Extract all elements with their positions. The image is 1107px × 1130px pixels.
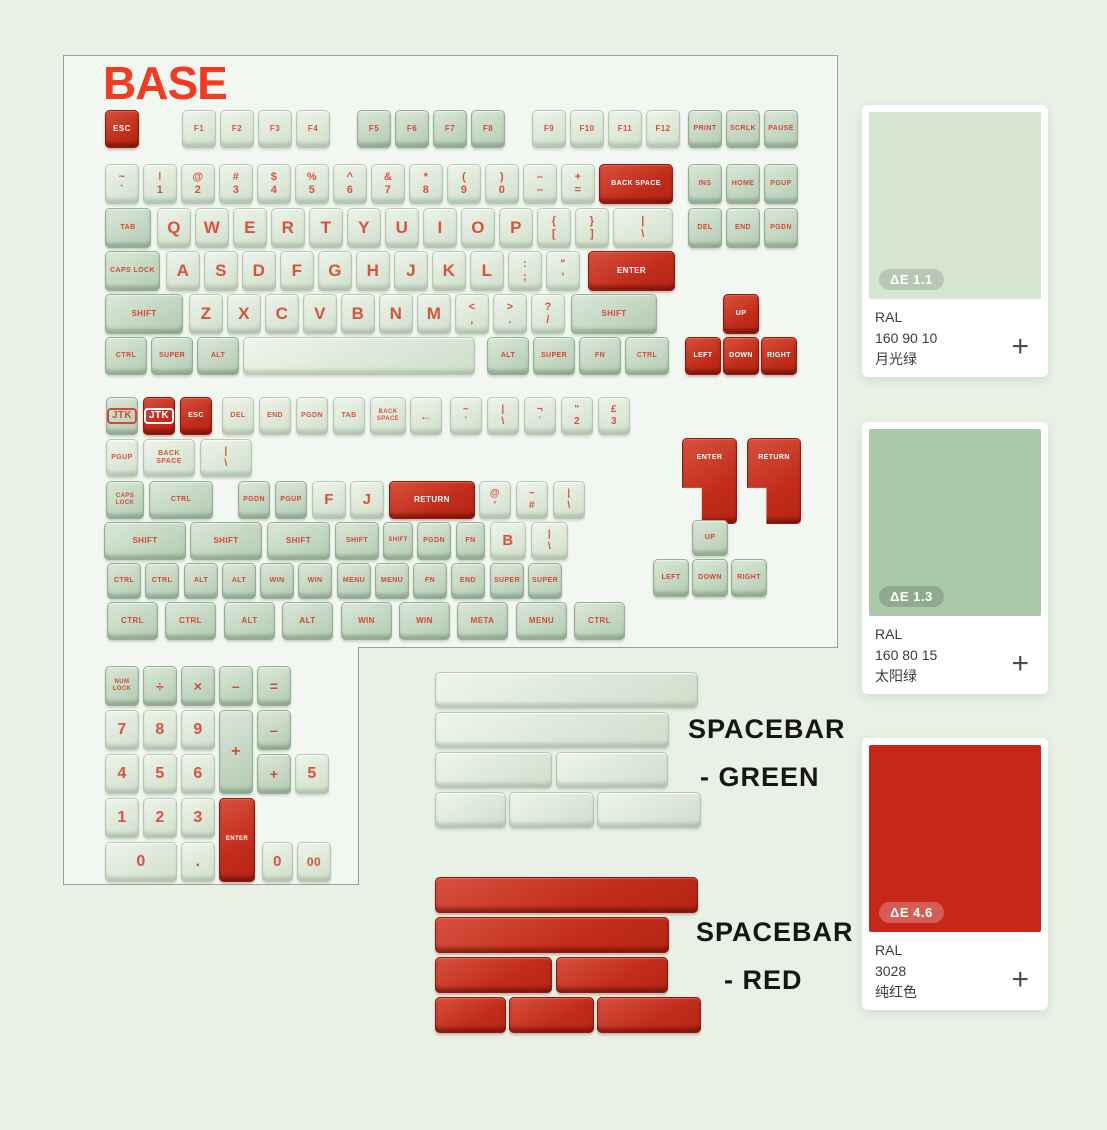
main-keycap: PGUP <box>764 164 798 204</box>
extras-keycap: ← <box>410 397 442 435</box>
extras-keycap: PGUP <box>275 481 307 519</box>
main-keycap: F6 <box>395 110 429 148</box>
main-keycap: PGDN <box>764 208 798 248</box>
color-card-moon-green: ΔE 1.1 RAL 160 90 10 月光绿 + <box>862 105 1048 377</box>
extras-keycap: RETURN <box>747 438 801 524</box>
main-keycap: PAUSE <box>764 110 798 148</box>
main-keycap: F9 <box>532 110 566 148</box>
main-keycap: & 7 <box>371 164 405 204</box>
main-keycap: K <box>432 251 466 291</box>
extras-keycap: F <box>312 481 346 519</box>
numpad-keycap: 9 <box>181 710 215 750</box>
extras-keycap: ALT <box>184 563 218 599</box>
main-keycap: DEL <box>688 208 722 248</box>
main-keycap: ^ 6 <box>333 164 367 204</box>
main-keycap: { [ <box>537 208 571 248</box>
numpad-keycap: 6 <box>181 754 215 794</box>
spacebar-green-keycap <box>435 752 552 788</box>
jtk-logo: JTK <box>107 408 137 424</box>
spacebar-red-keycap <box>435 957 552 993</box>
numpad-keycap: 0 <box>262 842 293 882</box>
spacebar-red-keycap <box>597 997 701 1033</box>
main-keycap: SHIFT <box>105 294 183 334</box>
numpad-keycap: 5 <box>295 754 329 794</box>
main-keycap: UP <box>723 294 759 334</box>
main-keycap: TAB <box>105 208 151 248</box>
extras-keycap: | \ <box>531 522 568 560</box>
numpad-keycap: – <box>219 666 253 706</box>
main-keycap: D <box>242 251 276 291</box>
spacebar-green-keycap <box>556 752 668 788</box>
add-color-button[interactable]: + <box>1011 332 1029 362</box>
color-swatch: ΔE 1.3 <box>869 429 1041 616</box>
extras-keycap: ALT <box>222 563 256 599</box>
numpad-keycap: 5 <box>143 754 177 794</box>
main-keycap: S <box>204 251 238 291</box>
delta-e-badge: ΔE 1.3 <box>879 586 944 607</box>
extras-keycap: CTRL <box>149 481 213 519</box>
main-keycap: ESC <box>105 110 139 148</box>
main-keycap: R <box>271 208 305 248</box>
main-keycap: PRINT <box>688 110 722 148</box>
numpad-keycap: + <box>257 754 291 794</box>
numpad-keycap: NUM LOCK <box>105 666 139 706</box>
spacebar-red-keycap <box>435 917 669 953</box>
extras-keycap: SHIFT <box>190 522 262 560</box>
main-keycap: F <box>280 251 314 291</box>
spacebar-red-sublabel: - RED <box>724 965 803 996</box>
card-footer: RAL 160 90 10 月光绿 + <box>869 299 1041 370</box>
numpad-keycap: 0 <box>105 842 177 882</box>
numpad-keycap: ENTER <box>219 798 255 882</box>
extras-keycap: CTRL <box>107 563 141 599</box>
main-keycap: % 5 <box>295 164 329 204</box>
spacebar-green-keycap <box>435 672 698 708</box>
extras-keycap: ~ # <box>516 481 548 519</box>
extras-keycap: PGDN <box>417 522 451 560</box>
color-card-sun-green: ΔE 1.3 RAL 160 80 15 太阳绿 + <box>862 422 1048 694</box>
main-keycap: END <box>726 208 760 248</box>
extras-keycap: END <box>259 397 291 435</box>
main-keycap: SHIFT <box>571 294 657 334</box>
extras-keycap: SHIFT <box>335 522 379 560</box>
main-keycap: < , <box>455 294 489 334</box>
main-keycap: RIGHT <box>761 337 797 375</box>
extras-keycap: END <box>451 563 485 599</box>
extras-keycap: | \ <box>487 397 519 435</box>
extras-keycap: TAB <box>333 397 365 435</box>
main-keycap: E <box>233 208 267 248</box>
extras-keycap: UP <box>692 520 728 556</box>
main-keycap: | \ <box>613 208 673 248</box>
main-keycap: INS <box>688 164 722 204</box>
extras-keycap: CTRL <box>165 602 216 640</box>
numpad-keycap: 7 <box>105 710 139 750</box>
extras-keycap: | \ <box>200 439 252 477</box>
main-keycap: F11 <box>608 110 642 148</box>
extras-keycap: CAPS LOCK <box>106 481 144 519</box>
extras-keycap: MENU <box>337 563 371 599</box>
main-keycap: CTRL <box>105 337 147 375</box>
delta-e-badge: ΔE 1.1 <box>879 269 944 290</box>
spacebar-red-label: SPACEBAR <box>696 917 854 948</box>
main-keycap: P <box>499 208 533 248</box>
extras-keycap: MENU <box>375 563 409 599</box>
color-card-pure-red: ΔE 4.6 RAL 3028 纯红色 + <box>862 738 1048 1010</box>
main-keycap: FN <box>579 337 621 375</box>
numpad-keycap: 4 <box>105 754 139 794</box>
main-keycap: F7 <box>433 110 467 148</box>
main-keycap: F1 <box>182 110 216 148</box>
main-keycap: LEFT <box>685 337 721 375</box>
extras-keycap: WIN <box>298 563 332 599</box>
main-keycap: M <box>417 294 451 334</box>
main-keycap: T <box>309 208 343 248</box>
extras-keycap: SUPER <box>528 563 562 599</box>
main-keycap: ( 9 <box>447 164 481 204</box>
main-keycap: SUPER <box>151 337 193 375</box>
main-keycap: DOWN <box>723 337 759 375</box>
main-keycap: I <box>423 208 457 248</box>
extras-keycap: J <box>350 481 384 519</box>
main-keycap: CAPS LOCK <box>105 251 160 291</box>
ral-label: RAL <box>875 624 1035 645</box>
numpad-keycap: 8 <box>143 710 177 750</box>
extras-keycap: £ 3 <box>598 397 630 435</box>
main-keycap: HOME <box>726 164 760 204</box>
main-keycap: * 8 <box>409 164 443 204</box>
extras-keycap: B <box>490 522 526 560</box>
extras-keycap: WIN <box>260 563 294 599</box>
main-keycap: ) 0 <box>485 164 519 204</box>
main-keycap: C <box>265 294 299 334</box>
extras-keycap: RETURN <box>389 481 475 519</box>
main-keycap: : ; <box>508 251 542 291</box>
main-keycap: L <box>470 251 504 291</box>
main-keycap: U <box>385 208 419 248</box>
extras-keycap: ENTER <box>682 438 737 524</box>
extras-keycap: ALT <box>224 602 275 640</box>
main-keycap: Z <box>189 294 223 334</box>
main-keycap: G <box>318 251 352 291</box>
main-keycap: N <box>379 294 413 334</box>
main-keycap: Q <box>157 208 191 248</box>
main-keycap: F8 <box>471 110 505 148</box>
spacebar-green-keycap <box>597 792 701 828</box>
spacebar-red-keycap <box>556 957 668 993</box>
extras-keycap: FN <box>413 563 447 599</box>
main-keycap: Y <box>347 208 381 248</box>
main-keycap: A <box>166 251 200 291</box>
extras-keycap: LEFT <box>653 559 689 597</box>
extras-keycap: ESC <box>180 397 212 435</box>
main-keycap: > . <box>493 294 527 334</box>
main-keycap: # 3 <box>219 164 253 204</box>
spacebar-red-keycap <box>435 997 506 1033</box>
main-keycap: ALT <box>487 337 529 375</box>
main-keycap: X <box>227 294 261 334</box>
extras-keycap: PGDN <box>238 481 270 519</box>
extras-keycap: SHIFT <box>383 522 413 560</box>
numpad-keycap: 1 <box>105 798 139 838</box>
extras-keycap: @ ' <box>479 481 511 519</box>
numpad-keycap: . <box>181 842 215 882</box>
extras-keycap: BACK SPACE <box>143 439 195 477</box>
ral-label: RAL <box>875 940 1035 961</box>
spacebar-green-sublabel: - GREEN <box>700 762 820 793</box>
extras-keycap: MENU <box>516 602 567 640</box>
extras-keycap: SHIFT <box>104 522 186 560</box>
main-keycap: B <box>341 294 375 334</box>
extras-keycap: ¬ ` <box>524 397 556 435</box>
spacebar-green-keycap <box>509 792 594 828</box>
extras-keycap: " 2 <box>561 397 593 435</box>
extras-keycap: JTK <box>106 397 138 435</box>
numpad-keycap: 2 <box>143 798 177 838</box>
extras-keycap: | \ <box>553 481 585 519</box>
delta-e-badge: ΔE 4.6 <box>879 902 944 923</box>
main-keycap <box>243 337 475 375</box>
extras-keycap: META <box>457 602 508 640</box>
spacebar-red-keycap <box>509 997 594 1033</box>
spacebar-green-keycap <box>435 792 506 828</box>
spacebar-green-label: SPACEBAR <box>688 714 846 745</box>
ral-label: RAL <box>875 307 1035 328</box>
main-keycap: ? / <box>531 294 565 334</box>
numpad-keycap: 3 <box>181 798 215 838</box>
main-keycap: ~ ` <box>105 164 139 204</box>
main-keycap: } ] <box>575 208 609 248</box>
extras-keycap: PGUP <box>106 439 138 477</box>
color-swatch: ΔE 4.6 <box>869 745 1041 932</box>
spacebar-red-keycap <box>435 877 698 913</box>
add-color-button[interactable]: + <box>1011 649 1029 679</box>
main-keycap: O <box>461 208 495 248</box>
extras-keycap: SUPER <box>490 563 524 599</box>
main-keycap: CTRL <box>625 337 669 375</box>
main-keycap: + = <box>561 164 595 204</box>
color-swatch: ΔE 1.1 <box>869 112 1041 299</box>
main-keycap: BACK SPACE <box>599 164 673 204</box>
extras-keycap: WIN <box>399 602 450 640</box>
numpad-keycap: 00 <box>297 842 331 882</box>
extras-keycap: JTK <box>143 397 175 435</box>
extras-keycap: CTRL <box>145 563 179 599</box>
extras-keycap: SHIFT <box>267 522 330 560</box>
numpad-keycap: + <box>219 710 253 794</box>
main-keycap: F10 <box>570 110 604 148</box>
main-keycap: F2 <box>220 110 254 148</box>
card-footer: RAL 3028 纯红色 + <box>869 932 1041 1003</box>
main-keycap: ENTER <box>588 251 675 291</box>
main-keycap: J <box>394 251 428 291</box>
keycap-kit-page: BASE ESCF1F2F3F4F5F6F7F8F9F10F11F12PRINT… <box>0 0 1107 1130</box>
extras-keycap: ALT <box>282 602 333 640</box>
main-keycap: @ 2 <box>181 164 215 204</box>
extras-keycap: RIGHT <box>731 559 767 597</box>
extras-keycap: BACK SPACE <box>370 397 406 435</box>
extras-keycap: FN <box>456 522 485 560</box>
numpad-keycap: – <box>257 710 291 750</box>
main-keycap: F5 <box>357 110 391 148</box>
main-keycap: ALT <box>197 337 239 375</box>
main-keycap: – – <box>523 164 557 204</box>
main-keycap: " ' <box>546 251 580 291</box>
main-keycap: F4 <box>296 110 330 148</box>
extras-keycap: PGDN <box>296 397 328 435</box>
main-keycap: ! 1 <box>143 164 177 204</box>
main-keycap: V <box>303 294 337 334</box>
jtk-logo: JTK <box>144 408 174 424</box>
main-keycap: $ 4 <box>257 164 291 204</box>
card-footer: RAL 160 80 15 太阳绿 + <box>869 616 1041 687</box>
extras-keycap: CTRL <box>107 602 158 640</box>
main-keycap: F3 <box>258 110 292 148</box>
extras-keycap: DOWN <box>692 559 728 597</box>
main-keycap: H <box>356 251 390 291</box>
extras-keycap: CTRL <box>574 602 625 640</box>
main-keycap: SCRLK <box>726 110 760 148</box>
main-keycap: W <box>195 208 229 248</box>
extras-keycap: DEL <box>222 397 254 435</box>
extras-keycap: ~ ` <box>450 397 482 435</box>
numpad-keycap: ÷ <box>143 666 177 706</box>
numpad-keycap: = <box>257 666 291 706</box>
main-keycap: SUPER <box>533 337 575 375</box>
spacebar-green-keycap <box>435 712 669 748</box>
add-color-button[interactable]: + <box>1011 965 1029 995</box>
numpad-keycap: × <box>181 666 215 706</box>
extras-keycap: WIN <box>341 602 392 640</box>
main-keycap: F12 <box>646 110 680 148</box>
